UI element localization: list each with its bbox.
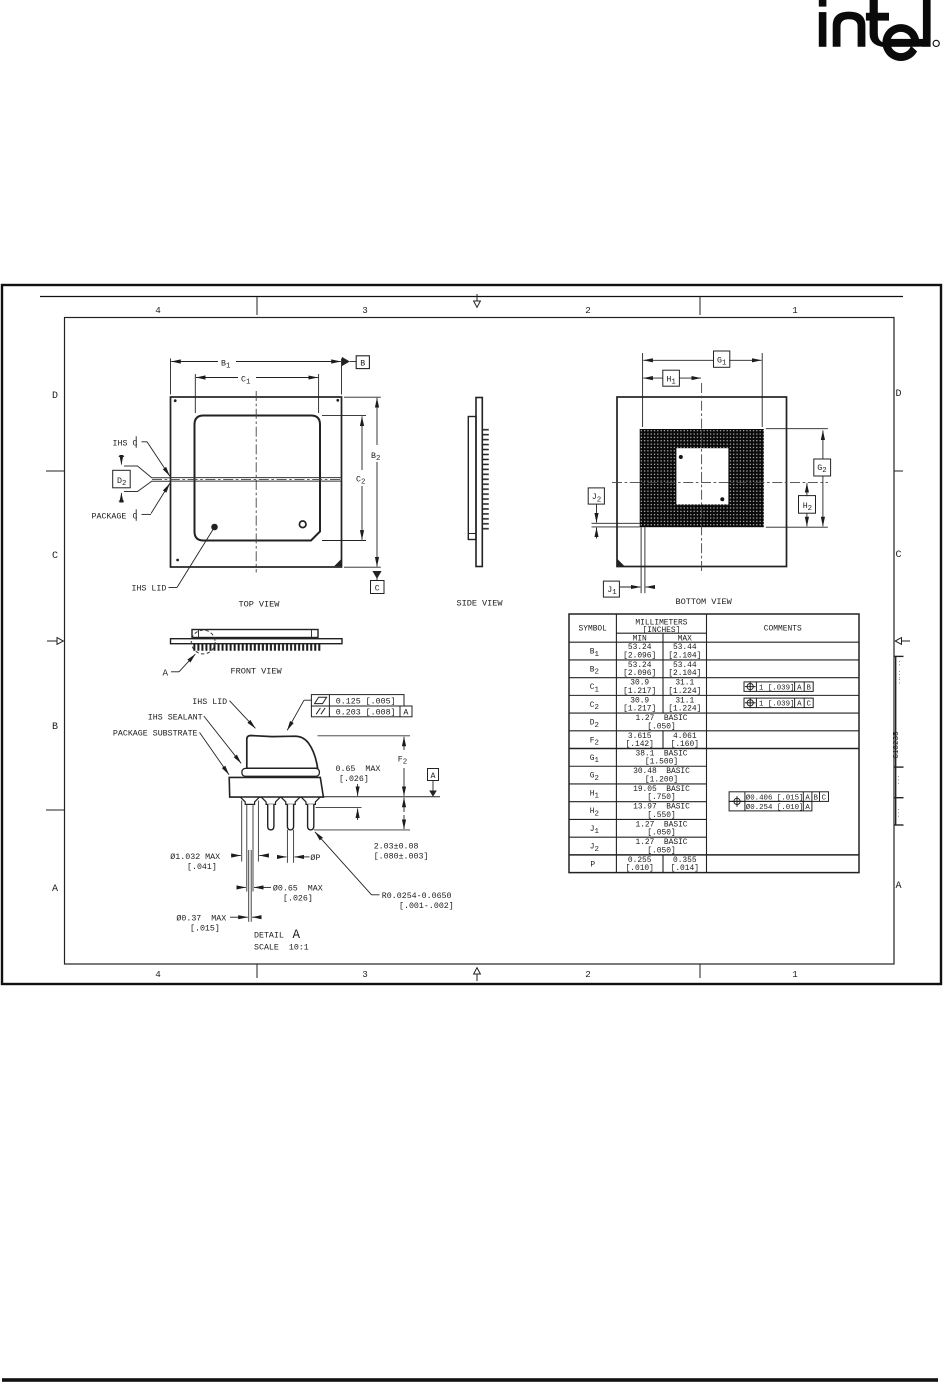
svg-text:SCALE 10:1: SCALE 10:1: [254, 944, 309, 953]
svg-text:[.750]: [.750]: [647, 793, 675, 802]
svg-text:[.026]: [.026]: [339, 774, 369, 784]
svg-text:···: ···: [896, 808, 902, 818]
svg-text:C: C: [895, 550, 901, 561]
svg-text:[1.224]: [1.224]: [668, 705, 701, 714]
svg-text:[.050]: [.050]: [647, 722, 675, 731]
svg-text:DETAIL: DETAIL: [254, 931, 284, 940]
svg-text:B: B: [360, 360, 365, 369]
svg-text:4: 4: [155, 305, 161, 316]
svg-text:0.125 [.005]: 0.125 [.005]: [336, 696, 396, 706]
svg-text:[2.104]: [2.104]: [668, 651, 701, 660]
svg-text:0.65 MAX: 0.65 MAX: [336, 765, 381, 774]
svg-text:[.080±.003]: [.080±.003]: [374, 852, 429, 862]
svg-text:[2.096]: [2.096]: [623, 669, 656, 678]
svg-text:Ø0.254 [.010]: Ø0.254 [.010]: [746, 803, 804, 812]
svg-text:[.050]: [.050]: [647, 846, 675, 855]
svg-text:Ø0.37 MAX: Ø0.37 MAX: [176, 914, 226, 924]
svg-text:IHS SEALANT: IHS SEALANT: [148, 713, 203, 722]
svg-text:A: A: [163, 668, 169, 679]
svg-text:1 [.039]: 1 [.039]: [759, 701, 794, 709]
svg-text:1: 1: [792, 969, 798, 980]
svg-text:SIDE VIEW: SIDE VIEW: [457, 599, 504, 609]
svg-text:PACKAGE SUBSTRATE: PACKAGE SUBSTRATE: [113, 730, 198, 739]
svg-text:[.550]: [.550]: [647, 811, 675, 820]
svg-text:[.160]: [.160]: [671, 740, 699, 749]
svg-text:IHS: IHS: [113, 440, 128, 449]
svg-text:[.001-.002]: [.001-.002]: [399, 901, 454, 911]
svg-text:Ø0.65 MAX: Ø0.65 MAX: [273, 884, 323, 894]
svg-text:[.026]: [.026]: [283, 894, 313, 904]
svg-text:2: 2: [585, 969, 591, 980]
svg-text:C18235: C18235: [893, 731, 901, 759]
svg-text:C: C: [133, 513, 138, 522]
svg-text:B: B: [52, 722, 58, 733]
svg-text:C: C: [806, 701, 811, 709]
svg-text:[1.217]: [1.217]: [623, 705, 656, 714]
svg-text:[1.217]: [1.217]: [623, 687, 656, 696]
svg-text:[1.500]: [1.500]: [645, 758, 678, 767]
svg-text:3: 3: [362, 305, 368, 316]
svg-text:FRONT VIEW: FRONT VIEW: [231, 667, 283, 677]
svg-text:[1.200]: [1.200]: [645, 775, 678, 784]
svg-text:C: C: [133, 440, 138, 449]
svg-text:D: D: [895, 389, 901, 400]
svg-text:Ø1.032 MAX: Ø1.032 MAX: [170, 852, 220, 862]
svg-text:[.015]: [.015]: [190, 924, 220, 934]
svg-text:IHS LID: IHS LID: [132, 585, 167, 594]
svg-text:PACKAGE: PACKAGE: [92, 513, 127, 522]
svg-text:A: A: [403, 709, 408, 718]
svg-text:TOP VIEW: TOP VIEW: [239, 600, 281, 610]
svg-text:P: P: [590, 860, 595, 869]
svg-text:4: 4: [155, 969, 161, 980]
svg-text:··· ··: ··· ··: [897, 660, 903, 679]
svg-text:1: 1: [792, 305, 798, 316]
svg-text:A: A: [805, 794, 810, 802]
svg-text:[1.224]: [1.224]: [668, 687, 701, 696]
svg-text:A: A: [797, 684, 802, 692]
svg-text:2.03±0.08: 2.03±0.08: [374, 843, 419, 852]
svg-text:SYMBOL: SYMBOL: [578, 625, 607, 634]
svg-text:[2.096]: [2.096]: [623, 651, 656, 660]
svg-text:A: A: [431, 772, 436, 781]
svg-text:A: A: [805, 804, 810, 812]
svg-text:COMMENTS: COMMENTS: [764, 625, 802, 634]
svg-text:A: A: [895, 881, 901, 892]
svg-text:[.142]: [.142]: [625, 740, 653, 749]
svg-text:1 [.039]: 1 [.039]: [759, 684, 794, 692]
svg-text:C: C: [375, 585, 380, 594]
svg-text:R0.0254-0.0650: R0.0254-0.0650: [382, 892, 452, 901]
svg-text:B: B: [813, 794, 818, 802]
svg-text:[.050]: [.050]: [647, 829, 675, 838]
svg-text:[.014]: [.014]: [671, 864, 699, 873]
svg-text:0.203 [.008]: 0.203 [.008]: [336, 708, 396, 718]
svg-text:A: A: [293, 928, 301, 942]
svg-text:3: 3: [362, 969, 368, 980]
svg-text:IHS LID: IHS LID: [192, 698, 227, 707]
svg-text:2: 2: [585, 305, 591, 316]
svg-text:A: A: [797, 701, 802, 709]
svg-text:Ø0.406 [.015]: Ø0.406 [.015]: [746, 793, 804, 802]
svg-text:··: ··: [897, 678, 903, 684]
svg-text:A: A: [52, 884, 58, 895]
svg-text:ØP: ØP: [310, 853, 320, 863]
svg-text:BOTTOM VIEW: BOTTOM VIEW: [676, 597, 733, 607]
svg-text:···: ···: [896, 775, 902, 785]
svg-text:D: D: [52, 391, 58, 402]
svg-text:[2.104]: [2.104]: [668, 669, 701, 678]
svg-text:B: B: [806, 684, 811, 692]
svg-text:C: C: [52, 551, 58, 562]
svg-text:C: C: [822, 794, 827, 802]
svg-text:[.041]: [.041]: [187, 862, 217, 872]
svg-text:[INCHES]: [INCHES]: [643, 626, 681, 635]
svg-text:[.010]: [.010]: [625, 864, 653, 873]
